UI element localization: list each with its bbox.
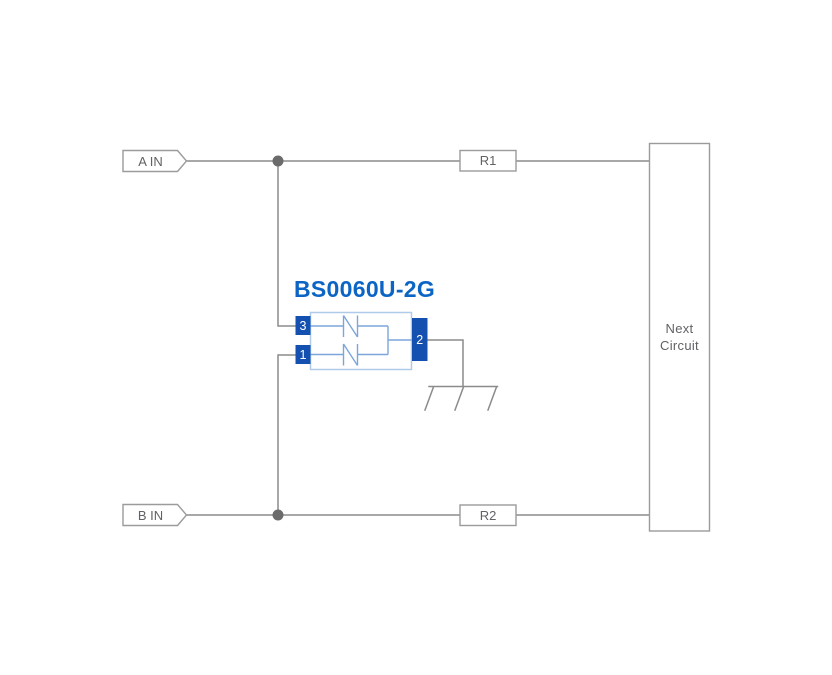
circuit-diagram: A IN B IN R1 R2 Next Circuit BS0060U-2G … — [0, 0, 832, 675]
ground-icon — [425, 387, 498, 411]
wire-pin1-branch-to-b — [278, 355, 296, 515]
component-part-number: BS0060U-2G — [294, 276, 434, 303]
next-circuit-label: Next Circuit — [649, 143, 710, 531]
tvs-component — [296, 313, 428, 370]
pin-1-label: 1 — [296, 345, 311, 364]
pin-3-label: 3 — [296, 316, 311, 335]
ground-slash-1 — [425, 387, 434, 410]
junction-dot-a — [273, 156, 284, 167]
component-body — [311, 313, 412, 370]
junction-dot-b — [273, 510, 284, 521]
ground-slash-3 — [488, 387, 497, 410]
wire-pin2-to-ground — [427, 340, 463, 386]
port-a-label: A IN — [123, 150, 178, 172]
next-circuit-label-line1: Next — [666, 320, 694, 337]
port-b-label: B IN — [123, 504, 178, 526]
pin-2-label: 2 — [412, 318, 428, 361]
resistor-r2-label: R2 — [460, 505, 516, 526]
next-circuit-label-line2: Circuit — [660, 337, 699, 354]
resistor-r1-label: R1 — [460, 150, 516, 171]
ground-slash-2 — [455, 387, 464, 410]
